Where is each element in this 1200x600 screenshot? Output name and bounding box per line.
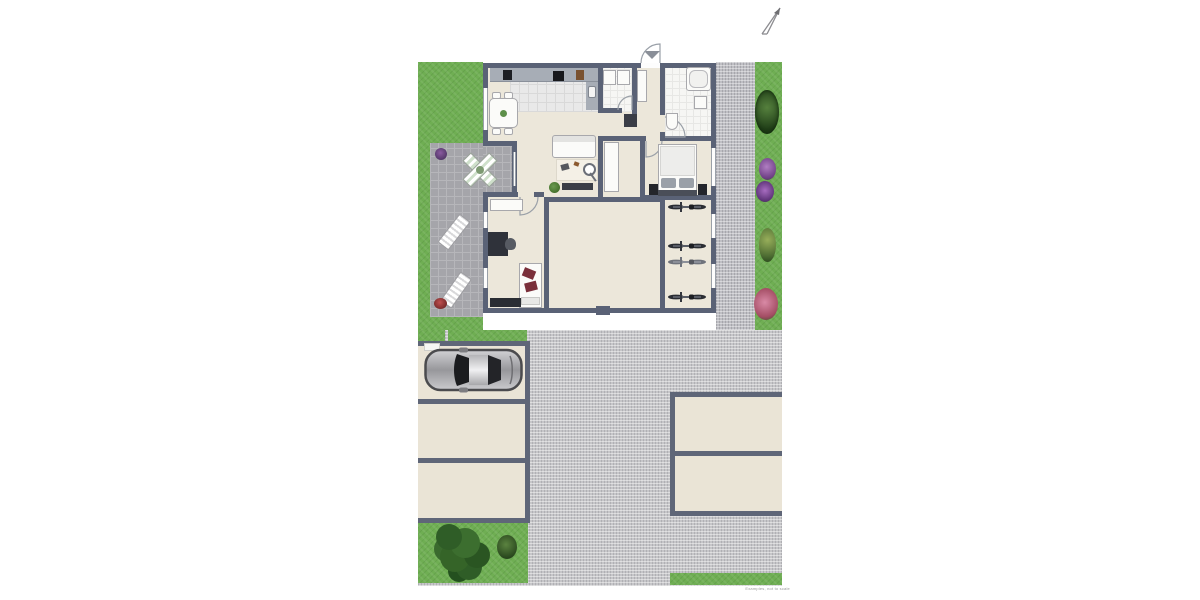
disclaimer-text: Examples, not to scale — [700, 586, 790, 591]
site-plan-canvas: Examples, not to scale — [0, 0, 1200, 600]
stall-border — [418, 458, 530, 463]
stall-border — [418, 399, 530, 404]
toilet — [666, 113, 678, 130]
cooktop — [553, 71, 564, 81]
tree — [436, 524, 462, 550]
dryer — [617, 70, 630, 85]
flower-bed — [754, 288, 778, 320]
bicycle-icon — [667, 201, 707, 213]
bathtub-inner — [689, 70, 708, 88]
parking-stall — [418, 404, 525, 458]
sofa — [552, 135, 596, 158]
bed-blanket — [660, 146, 695, 176]
chair — [492, 128, 501, 135]
washer — [603, 70, 616, 85]
stall-border — [525, 341, 530, 523]
entry-wardrobe — [637, 70, 647, 102]
tv-sideboard — [562, 183, 593, 190]
living-plant — [549, 182, 560, 193]
hall-wardrobe — [604, 142, 619, 192]
green-strip-bottom-right — [670, 573, 782, 585]
window-office-west-b — [483, 268, 488, 288]
flower-bed — [756, 181, 774, 202]
pillow — [679, 178, 694, 188]
stall-border — [670, 392, 782, 397]
parking-stall — [675, 456, 782, 511]
parking-stall — [418, 463, 525, 518]
kitchen-sink — [588, 86, 596, 98]
car — [424, 347, 523, 393]
chair — [504, 128, 513, 135]
flower-bed — [759, 158, 776, 180]
north-arrow-icon — [753, 2, 795, 38]
window-bike-east-b — [711, 264, 716, 288]
pillow — [661, 178, 676, 188]
nightstand — [698, 184, 707, 195]
bed-foot-pillow — [521, 297, 540, 305]
flower-bed — [759, 228, 776, 262]
headboard — [658, 190, 697, 196]
bicycle-icon — [667, 256, 707, 268]
stall-border — [670, 392, 675, 516]
office-shelf — [490, 199, 523, 211]
stall-border — [670, 451, 782, 456]
flower-pot — [435, 148, 447, 160]
parking-stall — [675, 397, 782, 451]
office-chair — [505, 238, 516, 250]
bath-sink — [694, 96, 707, 109]
hall-cabinet — [624, 114, 637, 127]
flower-pot — [434, 298, 447, 309]
stall-border — [418, 518, 530, 523]
shrub — [497, 535, 517, 559]
bicycle-icon — [667, 240, 707, 252]
bicycle-icon — [667, 291, 707, 303]
storage-door-post — [596, 306, 610, 315]
nightstand — [649, 184, 658, 195]
grass-strip-b — [448, 330, 527, 341]
flower-bed — [755, 90, 779, 134]
cutting-board — [576, 70, 584, 80]
table-plant — [500, 110, 507, 117]
stove — [503, 70, 512, 80]
office-sideboard — [490, 298, 521, 307]
stall-border — [670, 511, 782, 516]
